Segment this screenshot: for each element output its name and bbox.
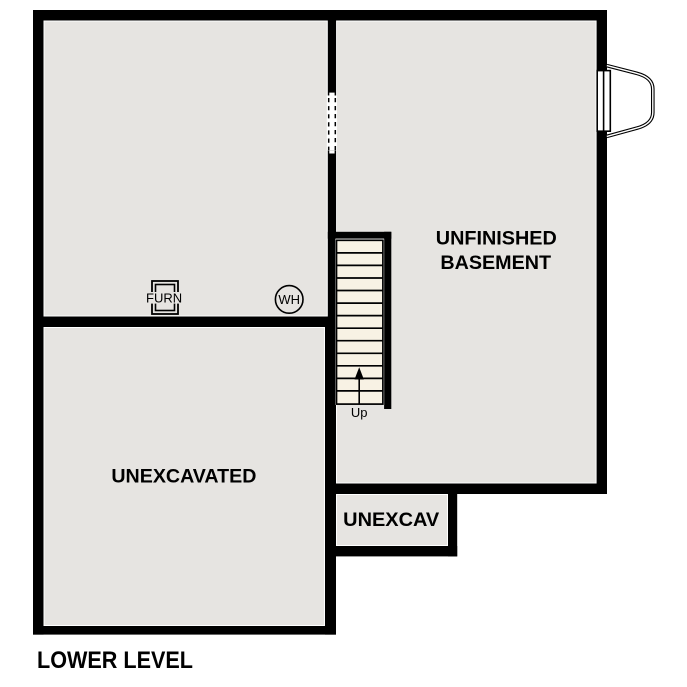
svg-text:LOWER LEVEL: LOWER LEVEL (37, 647, 193, 674)
svg-text:BASEMENT: BASEMENT (440, 252, 551, 274)
svg-text:Up: Up (351, 405, 368, 420)
svg-text:UNEXCAV: UNEXCAV (343, 509, 440, 531)
svg-text:UNEXCAVATED: UNEXCAVATED (111, 466, 256, 488)
svg-text:UNFINISHED: UNFINISHED (436, 228, 557, 250)
svg-text:WH: WH (278, 292, 300, 307)
svg-text:FURN: FURN (146, 291, 182, 306)
